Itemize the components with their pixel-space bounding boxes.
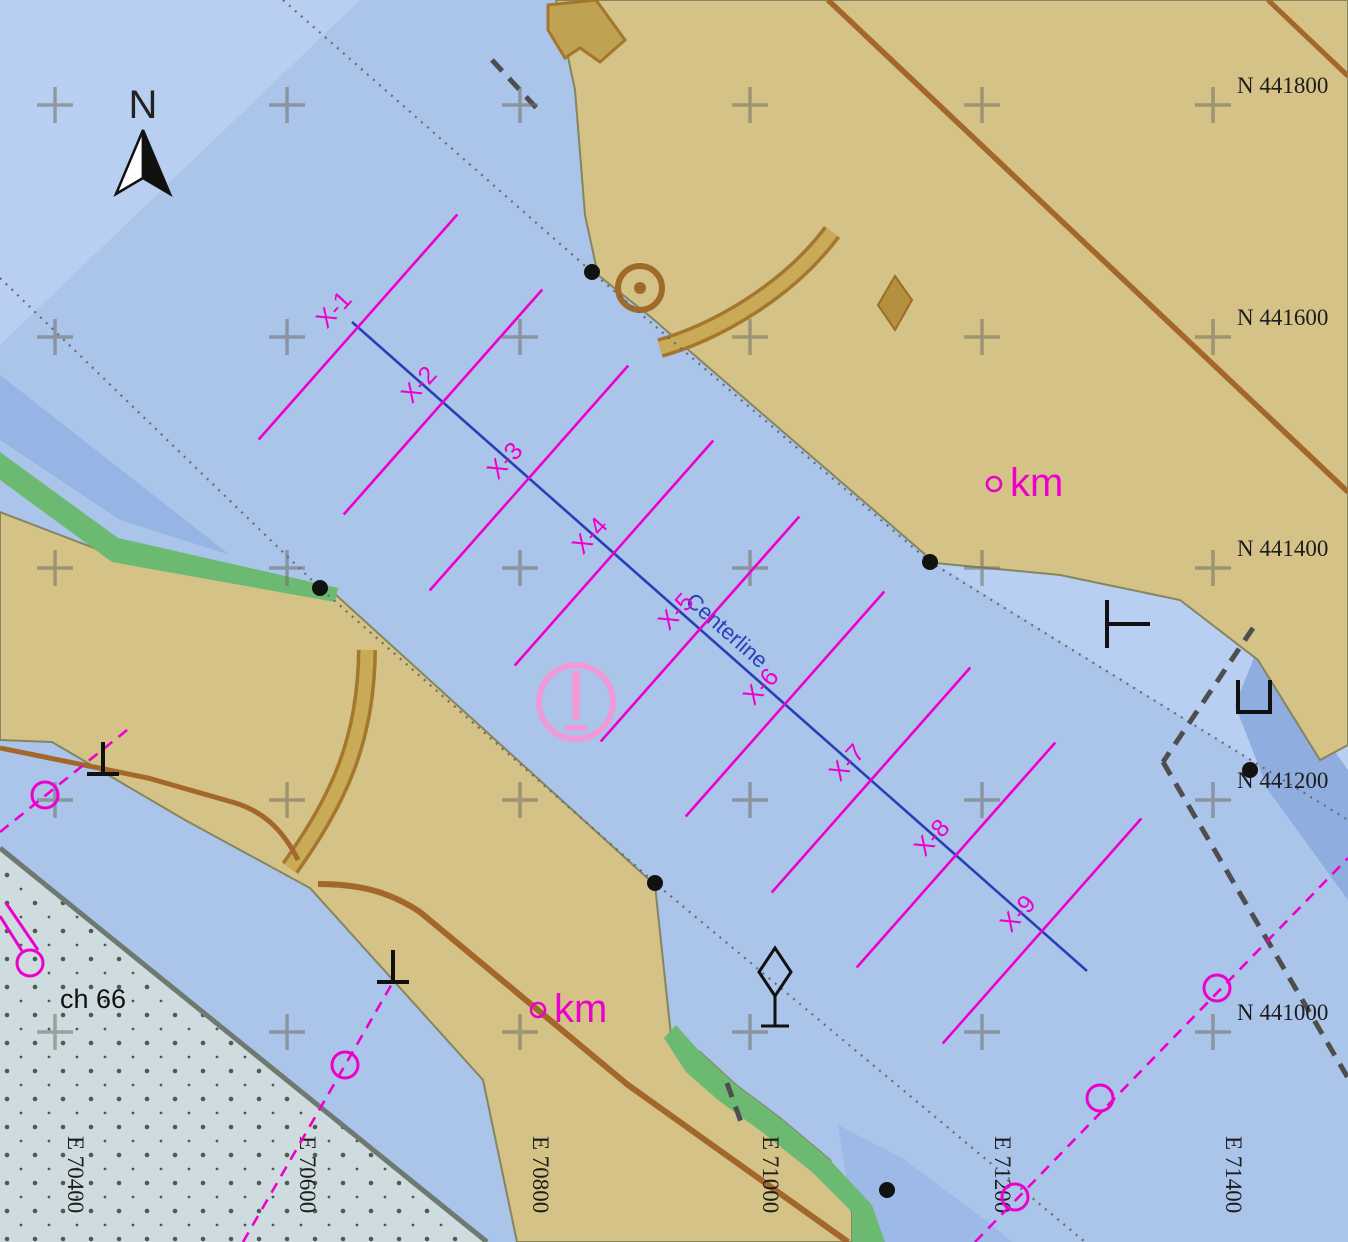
point-feature-dot: [312, 580, 328, 596]
easting-label: E 70800: [528, 1136, 553, 1213]
channel-label: ch 66: [60, 984, 126, 1014]
north-arrow-label: N: [129, 83, 158, 127]
easting-label: E 71400: [1221, 1136, 1246, 1213]
point-feature-dot: [584, 264, 600, 280]
easting-label: E 71000: [758, 1136, 783, 1213]
easting-label: E 70400: [63, 1136, 88, 1213]
northing-label: N 441600: [1237, 305, 1328, 330]
northing-label: N 441000: [1237, 1000, 1328, 1025]
km-marker-label: km: [1010, 461, 1063, 505]
northing-label: N 441800: [1237, 73, 1328, 98]
chart-viewport[interactable]: E 70400E 70600E 70800E 71000E 71200E 714…: [0, 0, 1348, 1242]
easting-label: E 70600: [295, 1136, 320, 1213]
map-canvas[interactable]: E 70400E 70600E 70800E 71000E 71200E 714…: [0, 0, 1348, 1242]
point-feature-dot: [1242, 762, 1258, 778]
km-marker-label: km: [554, 987, 607, 1031]
northing-label: N 441400: [1237, 536, 1328, 561]
point-feature-dot: [922, 554, 938, 570]
point-feature-dot: [647, 875, 663, 891]
point-feature-dot: [879, 1182, 895, 1198]
